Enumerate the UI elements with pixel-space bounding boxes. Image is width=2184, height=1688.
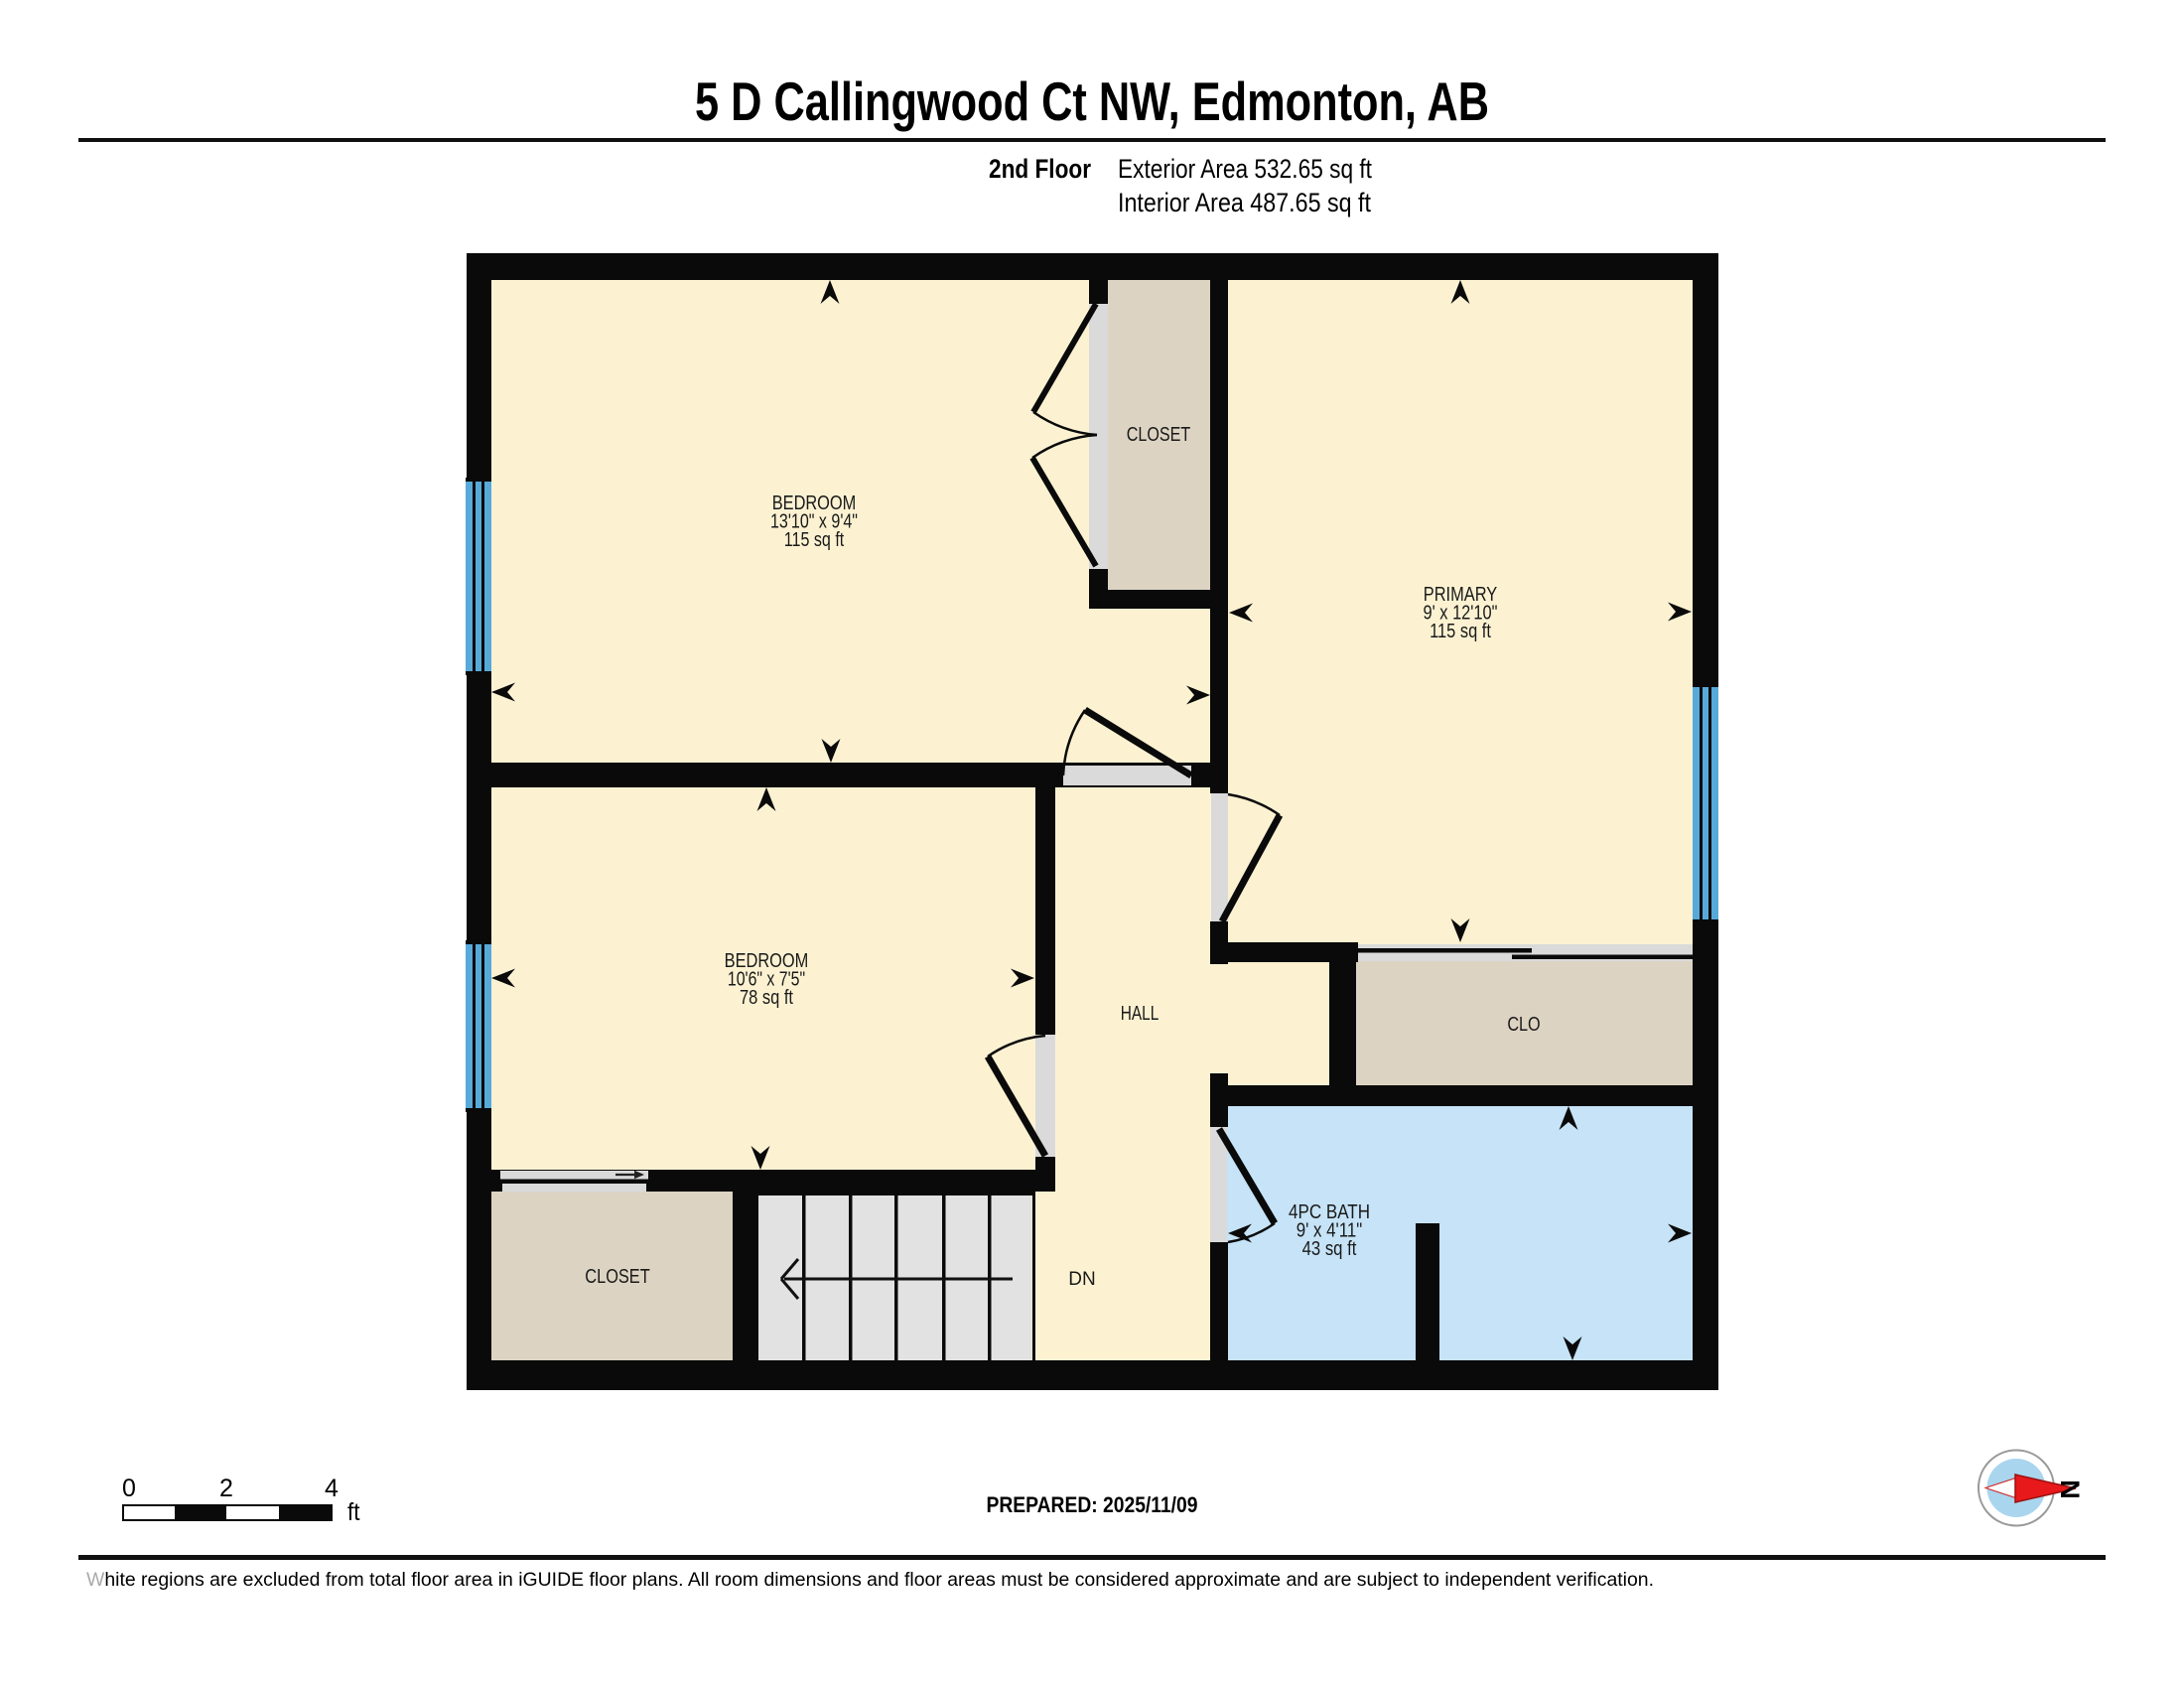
svg-text:PREPARED: 2025/11/09: PREPARED: 2025/11/09 (987, 1492, 1198, 1517)
svg-text:5 D Callingwood Ct NW, Edmonto: 5 D Callingwood Ct NW, Edmonton, AB (695, 70, 1489, 132)
svg-text:White regions are excluded fro: White regions are excluded from total fl… (86, 1569, 1654, 1591)
svg-text:115 sq ft: 115 sq ft (784, 529, 845, 551)
svg-text:CLOSET: CLOSET (1127, 424, 1191, 446)
svg-text:43 sq ft: 43 sq ft (1302, 1238, 1357, 1260)
svg-text:0: 0 (122, 1475, 136, 1502)
svg-text:115 sq ft: 115 sq ft (1430, 621, 1491, 642)
svg-text:CLOSET: CLOSET (585, 1266, 649, 1288)
svg-text:2: 2 (219, 1475, 233, 1502)
svg-text:ft: ft (347, 1498, 360, 1526)
svg-text:Exterior Area 532.65 sq ft: Exterior Area 532.65 sq ft (1118, 154, 1372, 184)
svg-text:HALL: HALL (1121, 1003, 1160, 1025)
svg-text:DN: DN (1068, 1269, 1095, 1290)
svg-text:Interior Area 487.65 sq ft: Interior Area 487.65 sq ft (1118, 188, 1371, 217)
svg-text:N: N (2055, 1479, 2085, 1499)
svg-text:78 sq ft: 78 sq ft (740, 987, 793, 1009)
svg-text:4: 4 (325, 1475, 339, 1502)
svg-text:2nd Floor: 2nd Floor (989, 154, 1091, 184)
svg-text:CLO: CLO (1507, 1014, 1540, 1036)
